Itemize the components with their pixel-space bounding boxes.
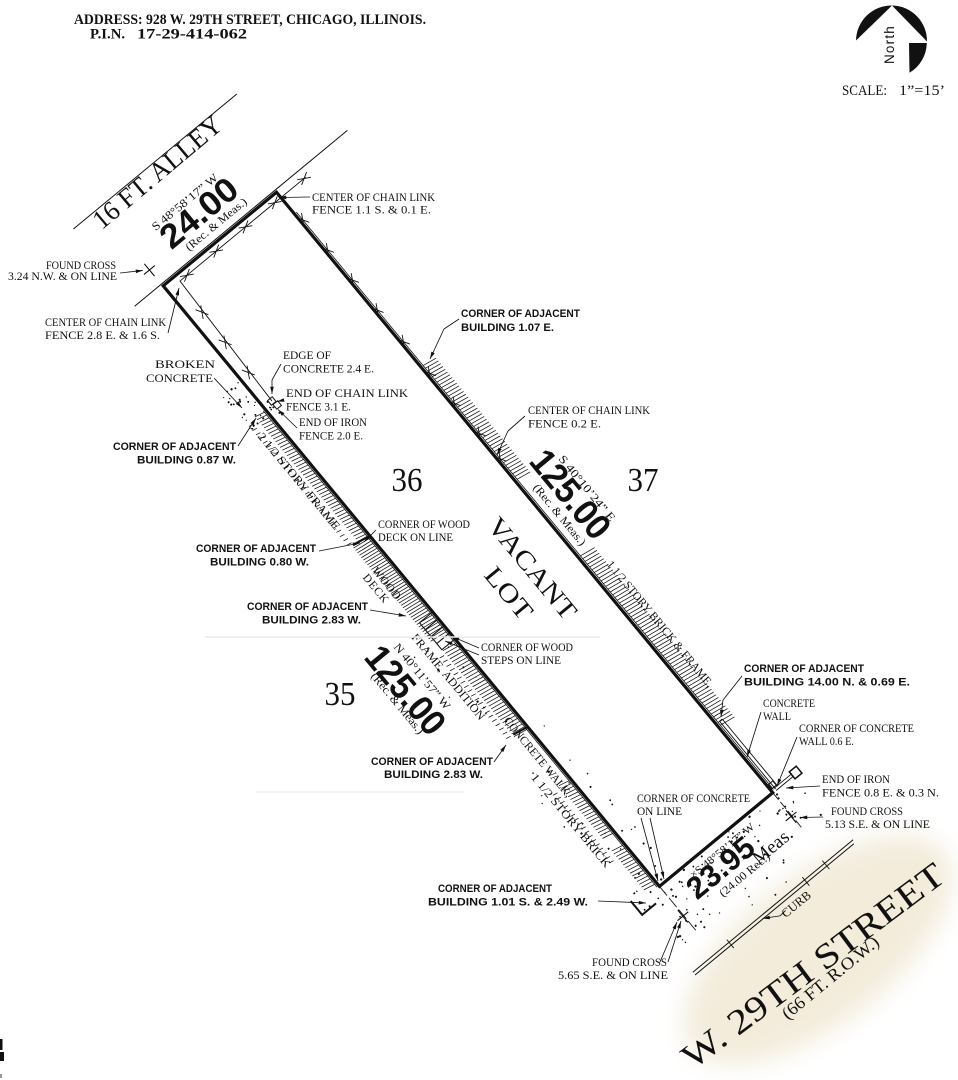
svg-text:37: 37 — [628, 462, 659, 499]
svg-text:CORNER OF ADJACENT: CORNER OF ADJACENT — [247, 601, 368, 613]
svg-text:CORNER OF ADJACENT: CORNER OF ADJACENT — [113, 441, 236, 453]
svg-text:CORNER OF ADJACENT: CORNER OF ADJACENT — [438, 883, 552, 895]
svg-text:SCALE:: SCALE: — [842, 83, 887, 99]
svg-text:CENTER OF CHAIN LINK: CENTER OF CHAIN LINK — [312, 192, 436, 204]
svg-text:ADDRESS: 928 W. 29TH STREET, C: ADDRESS: 928 W. 29TH STREET, CHICAGO, IL… — [74, 12, 426, 28]
svg-text:CENTER OF CHAIN LINK: CENTER OF CHAIN LINK — [528, 405, 651, 417]
svg-text:North: North — [882, 25, 897, 64]
svg-text:FENCE 2.0 E.: FENCE 2.0 E. — [299, 431, 363, 443]
svg-text:ON LINE: ON LINE — [637, 806, 682, 818]
svg-text:BUILDING 2.83 W.: BUILDING 2.83 W. — [262, 615, 361, 627]
svg-text:CORNER OF WOOD: CORNER OF WOOD — [481, 642, 573, 654]
svg-text:17-29-414-062: 17-29-414-062 — [137, 27, 247, 43]
svg-text:BUILDING 0.80 W.: BUILDING 0.80 W. — [210, 557, 309, 569]
svg-text:CORNER OF WOOD: CORNER OF WOOD — [378, 519, 470, 531]
svg-text:STEPS ON LINE: STEPS ON LINE — [481, 655, 561, 667]
svg-text:5.13 S.E. & ON LINE: 5.13 S.E. & ON LINE — [825, 819, 930, 831]
svg-text:BUILDING 2.83 W.: BUILDING 2.83 W. — [384, 769, 483, 781]
svg-text:CENTER OF CHAIN LINK: CENTER OF CHAIN LINK — [45, 317, 167, 329]
svg-text:3.24 N.W. & ON LINE: 3.24 N.W. & ON LINE — [8, 271, 117, 283]
svg-text:CONCRETE: CONCRETE — [146, 373, 213, 385]
svg-text:BUILDING 14.00 N. & 0.69 E.: BUILDING 14.00 N. & 0.69 E. — [744, 677, 910, 689]
svg-text:BUILDING 0.87 W.: BUILDING 0.87 W. — [137, 455, 236, 467]
svg-text:DECK ON LINE: DECK ON LINE — [378, 532, 453, 544]
svg-text:5.65 S.E. & ON LINE: 5.65 S.E. & ON LINE — [558, 970, 668, 982]
svg-text:CORNER OF CONCRETE: CORNER OF CONCRETE — [637, 793, 750, 805]
svg-text:P.I.N.: P.I.N. — [90, 27, 125, 43]
svg-text:CORNER OF ADJACENT: CORNER OF ADJACENT — [461, 308, 580, 320]
svg-text:CONCRETE: CONCRETE — [763, 698, 815, 710]
svg-text:BUILDING 1.07 E.: BUILDING 1.07 E. — [461, 322, 554, 334]
svg-text:BROKEN: BROKEN — [155, 359, 216, 371]
svg-text:CONCRETE 2.4 E.: CONCRETE 2.4 E. — [283, 364, 374, 376]
svg-text:CORNER OF ADJACENT: CORNER OF ADJACENT — [744, 663, 864, 675]
svg-text:END OF CHAIN LINK: END OF CHAIN LINK — [286, 388, 409, 400]
svg-text:FENCE 1.1 S. & 0.1 E.: FENCE 1.1 S. & 0.1 E. — [312, 205, 431, 217]
svg-text:35: 35 — [325, 676, 356, 713]
svg-text:FENCE 2.8 E. & 1.6 S.: FENCE 2.8 E. & 1.6 S. — [45, 330, 160, 342]
svg-text:BUILDING 1.01 S. & 2.49 W.: BUILDING 1.01 S. & 2.49 W. — [428, 897, 588, 909]
svg-text:EDGE OF: EDGE OF — [283, 350, 331, 362]
svg-text:WALL: WALL — [763, 711, 791, 723]
svg-text:FOUND CROSS: FOUND CROSS — [831, 806, 903, 818]
svg-text:1”=15’: 1”=15’ — [899, 83, 945, 99]
svg-text:36: 36 — [392, 462, 423, 499]
svg-text:FENCE 3.1 E.: FENCE 3.1 E. — [286, 402, 351, 414]
svg-text:CORNER OF ADJACENT: CORNER OF ADJACENT — [371, 756, 493, 768]
svg-text:FENCE 0.8 E. & 0.3 N.: FENCE 0.8 E. & 0.3 N. — [822, 788, 939, 800]
svg-text:WALL 0.6 E.: WALL 0.6 E. — [799, 736, 854, 748]
svg-text:FENCE 0.2 E.: FENCE 0.2 E. — [528, 419, 601, 431]
svg-text:END OF IRON: END OF IRON — [822, 774, 891, 786]
svg-text:FOUND CROSS: FOUND CROSS — [592, 957, 667, 969]
svg-text:CORNER OF ADJACENT: CORNER OF ADJACENT — [196, 543, 316, 555]
svg-text:END OF IRON: END OF IRON — [299, 417, 368, 429]
svg-text:CORNER OF CONCRETE: CORNER OF CONCRETE — [799, 723, 914, 735]
